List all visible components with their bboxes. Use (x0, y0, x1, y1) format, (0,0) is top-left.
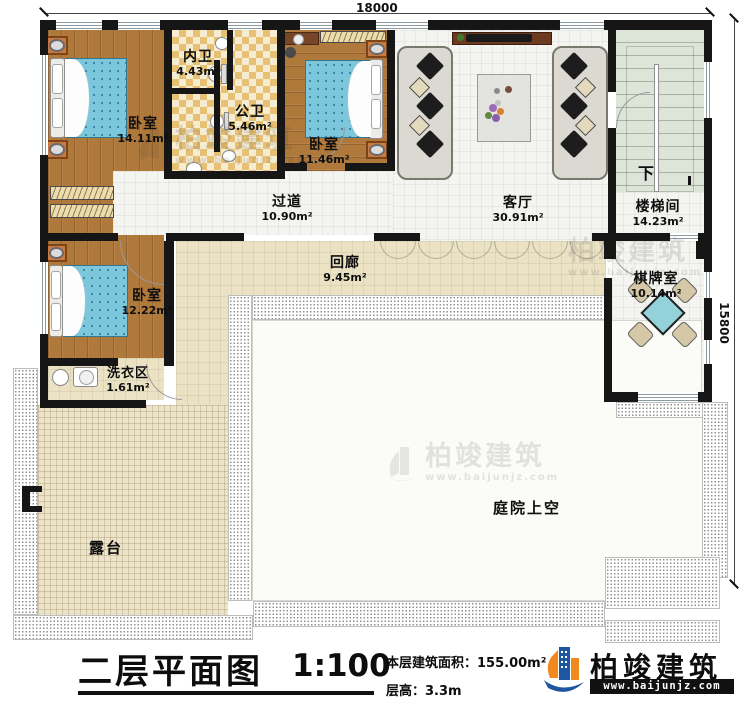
table-decor (505, 86, 512, 93)
wall (592, 233, 672, 241)
dimension-tick (705, 7, 715, 17)
terrace-door-jamb (22, 506, 42, 512)
stairs-down-label: 下 (638, 165, 654, 183)
wall (40, 358, 118, 366)
nightstand (366, 141, 388, 159)
title-underline (78, 691, 374, 695)
terrace-rail-bottom (13, 615, 253, 640)
wardrobe (50, 204, 114, 218)
window (638, 392, 698, 402)
flowers (492, 114, 500, 122)
wall (387, 30, 395, 171)
wall (604, 278, 612, 392)
room-label-inner-bath: 内卫 4.43m² (176, 50, 219, 78)
dimension-line (44, 13, 710, 14)
room-label-chess-room: 棋牌室 10.14m² (630, 272, 681, 300)
wall (172, 88, 214, 94)
stair-rail (654, 64, 659, 192)
pillow (51, 303, 61, 331)
chess-room-rail (616, 402, 704, 418)
wall (40, 400, 48, 408)
window (40, 55, 48, 155)
floor-lamp (285, 47, 296, 58)
room-label-laundry: 洗衣区 1.61m² (106, 367, 149, 394)
nightstand (366, 40, 388, 58)
plant (457, 34, 464, 41)
window (40, 262, 48, 334)
side-void (612, 402, 702, 557)
courtyard-rail-top (252, 295, 605, 320)
pillow (371, 99, 381, 129)
dimension-height: 15800 (717, 299, 731, 347)
nightstand (46, 244, 67, 262)
pillow (371, 65, 381, 95)
walkway (605, 608, 720, 621)
bed-sheet (347, 61, 371, 137)
window (704, 340, 712, 364)
coffee-table (477, 74, 531, 142)
pillow (52, 64, 63, 94)
room-label-bedroom1: 卧室 14.11m² (117, 117, 168, 145)
pillow (52, 98, 63, 128)
room-label-hallway: 过道 10.90m² (261, 195, 312, 223)
bathroom-sink (222, 150, 236, 162)
nightstand (46, 140, 68, 159)
room-label-bedroom3: 卧室 12.22m² (121, 289, 172, 317)
wall (698, 392, 712, 402)
table-decor (494, 88, 500, 94)
room-label-living-room: 客厅 30.91m² (492, 196, 543, 224)
window (118, 20, 160, 30)
flowers (495, 100, 501, 106)
wardrobe (50, 186, 114, 200)
window (704, 272, 712, 298)
dimension-line (734, 20, 735, 586)
page-title: 二层平面图 (78, 644, 263, 693)
room-label-terrace: 露台 (89, 540, 123, 557)
wall (696, 241, 712, 259)
wall (214, 94, 220, 152)
wall (604, 241, 616, 259)
terrace-door-jamb (22, 486, 42, 492)
wall (227, 30, 233, 90)
wall (164, 171, 285, 179)
laundry-sink (52, 369, 69, 386)
floor-plan: 柏竣建筑 www.baijunjz.com 柏竣建筑 www.baijunjz.… (0, 0, 750, 711)
wall (164, 30, 172, 171)
terrace-floor (38, 405, 228, 615)
floor-height-label: 层高：3.3m (386, 680, 462, 699)
washer-door (79, 370, 94, 385)
window (228, 20, 262, 30)
wall (166, 233, 244, 241)
corridor-leg-floor (176, 241, 228, 405)
room-label-stairwell: 楼梯间 14.23m² (632, 200, 683, 228)
tv (466, 34, 532, 42)
flowers (485, 112, 492, 119)
lower-roof-hatch (605, 557, 720, 643)
room-label-courtyard: 庭院上空 (493, 500, 561, 517)
window (704, 62, 712, 118)
wall (374, 233, 420, 241)
pillow (51, 271, 61, 299)
wall (604, 392, 638, 402)
floor-area-label: 本层建筑面积：155.00m² (386, 652, 546, 671)
wall (345, 163, 395, 171)
stair-arrow (688, 176, 691, 185)
courtyard-rail-left (228, 295, 252, 601)
dimension-tick (39, 7, 49, 17)
window (376, 20, 428, 30)
wall (40, 233, 118, 241)
wall (48, 400, 146, 408)
company-logo-icon (540, 644, 588, 696)
window (560, 20, 604, 30)
scale-label: 1:100 (292, 648, 391, 684)
wall (608, 20, 616, 92)
wall (608, 128, 616, 241)
desk-lamp (293, 34, 304, 45)
room-label-bedroom2: 卧室 11.46m² (298, 138, 349, 166)
window (56, 20, 102, 30)
room-label-public-bath: 公卫 5.46m² (228, 105, 271, 133)
right-rail (702, 402, 728, 578)
wall (277, 30, 285, 171)
wall (698, 233, 712, 241)
window (670, 233, 698, 241)
window (300, 20, 332, 30)
company-url: www.baijunjz.com (590, 679, 734, 694)
room-label-corridor: 回廊 9.45m² (323, 256, 366, 284)
nightstand (46, 36, 68, 55)
courtyard-rail-bottom (253, 601, 605, 627)
